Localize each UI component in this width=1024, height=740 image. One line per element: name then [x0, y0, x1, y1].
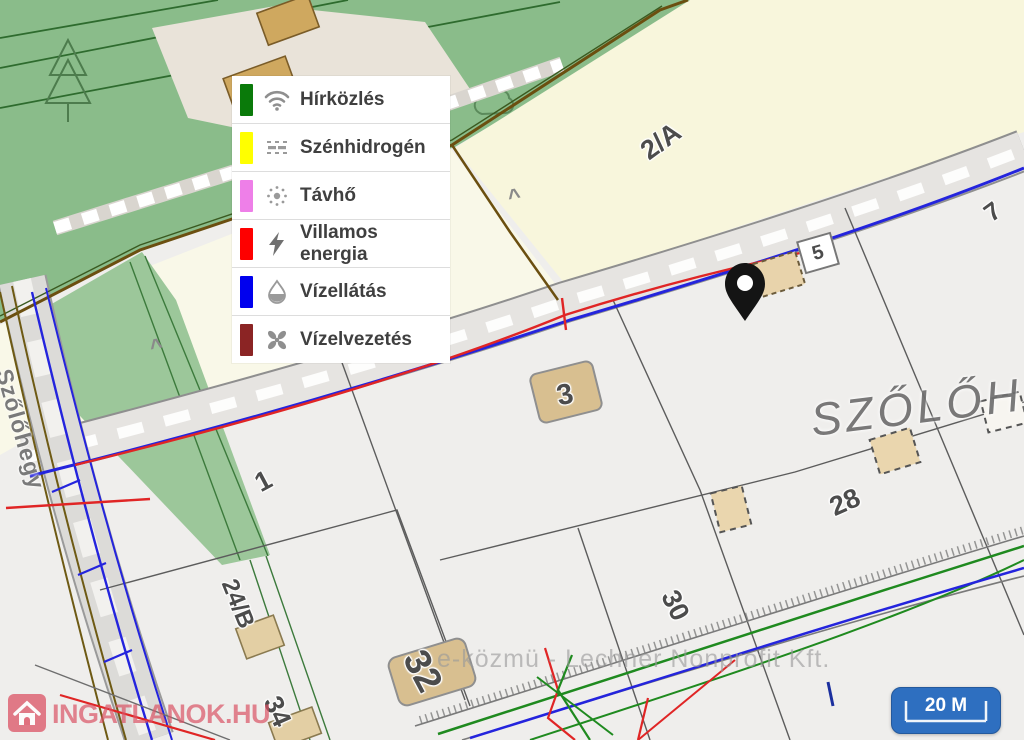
- scale-button[interactable]: 20 M: [891, 687, 1001, 734]
- legend-label: Szénhidrogén: [300, 137, 426, 159]
- legend-label: Távhő: [300, 185, 356, 207]
- scale-label: 20 M: [892, 695, 1000, 717]
- legend-swatch: [240, 84, 253, 116]
- legend-item-hirkozles[interactable]: Hírközlés: [232, 76, 450, 124]
- map-viewport[interactable]: 2/A 5 7 3 1 28 30 24/B 32 34 ^ ^ SZŐLŐHE…: [0, 0, 1024, 740]
- legend-swatch: [240, 276, 253, 308]
- map-canvas[interactable]: [0, 0, 1024, 740]
- parcel-label-5: 5: [809, 240, 826, 265]
- brand-text: INGATLANOK.HU: [52, 699, 270, 730]
- house-icon: [8, 694, 46, 732]
- pin-hole: [737, 275, 753, 291]
- droplet-icon: [263, 278, 291, 306]
- legend-item-tavho[interactable]: Távhő: [232, 172, 450, 220]
- legend-swatch: [240, 180, 253, 212]
- legend-swatch: [240, 132, 253, 164]
- location-pin[interactable]: [722, 262, 768, 322]
- sun-icon: [263, 182, 291, 210]
- legend-item-vizelvezetes[interactable]: Vízelvezetés: [232, 316, 450, 363]
- wifi-icon: [263, 86, 291, 114]
- legend-label: Villamos energia: [300, 222, 450, 266]
- utility-legend: Hírközlés Szénhidrogén: [232, 76, 450, 363]
- legend-label: Vízellátás: [300, 281, 387, 303]
- lightning-icon: [263, 230, 291, 258]
- legend-item-szenhidrogen[interactable]: Szénhidrogén: [232, 124, 450, 172]
- fan-icon: [263, 326, 291, 354]
- legend-label: Vízelvezetés: [300, 329, 412, 351]
- steam-icon: [263, 134, 291, 162]
- legend-item-villamos[interactable]: Villamos energia: [232, 220, 450, 268]
- legend-item-vizellatas[interactable]: Vízellátás: [232, 268, 450, 316]
- legend-swatch: [240, 228, 253, 260]
- brand-watermark: INGATLANOK.HU: [8, 694, 270, 732]
- legend-swatch: [240, 324, 253, 356]
- legend-label: Hírközlés: [300, 89, 384, 111]
- map-attribution: e-közmü - Lechner Nonprofit Kft.: [437, 645, 830, 674]
